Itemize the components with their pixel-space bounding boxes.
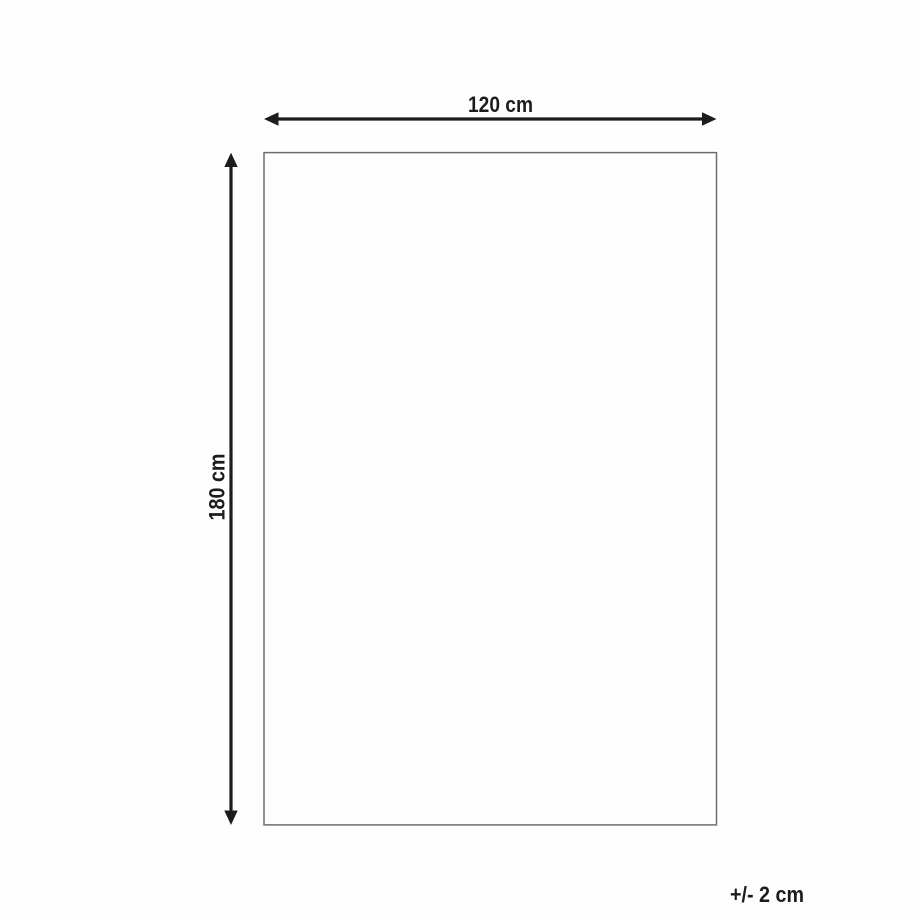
svg-text:+/- 2 cm: +/- 2 cm <box>730 882 804 907</box>
svg-text:180 cm: 180 cm <box>205 454 230 521</box>
svg-text:120 cm: 120 cm <box>468 92 533 117</box>
